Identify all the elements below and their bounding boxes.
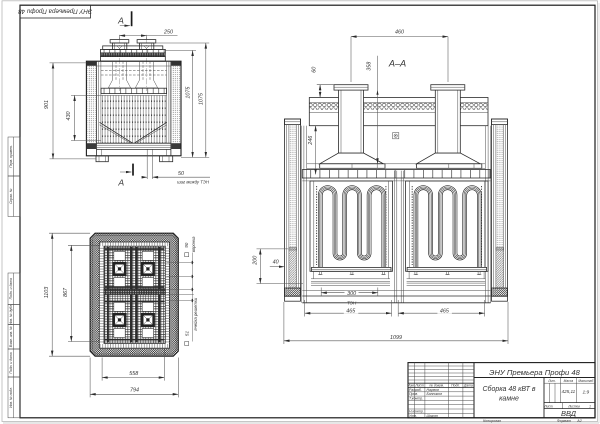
svg-text:1103: 1103 bbox=[44, 287, 50, 299]
svg-text:А2: А2 bbox=[576, 419, 581, 423]
svg-text:Лит.: Лит. bbox=[547, 379, 556, 383]
svg-text:465: 465 bbox=[440, 309, 450, 315]
svg-text:Листов: Листов bbox=[567, 404, 580, 408]
svg-text:1099: 1099 bbox=[390, 335, 402, 341]
svg-text:А–А: А–А bbox=[388, 59, 406, 69]
svg-text:Инв. № подл.: Инв. № подл. bbox=[9, 387, 13, 408]
svg-text:ячейка решетки: ячейка решетки bbox=[193, 297, 198, 331]
svg-text:Изм.: Изм. bbox=[408, 383, 415, 387]
svg-text:1075: 1075 bbox=[199, 92, 205, 105]
svg-text:Справ. №: Справ. № bbox=[9, 188, 13, 204]
svg-text:460: 460 bbox=[395, 30, 404, 36]
svg-text:Лист: Лист bbox=[543, 404, 553, 408]
svg-text:камне: камне bbox=[499, 396, 519, 403]
svg-text:Т.контр.: Т.контр. bbox=[409, 397, 423, 401]
svg-text:Сборка 48 кВТ в: Сборка 48 кВТ в bbox=[482, 385, 535, 393]
svg-text:Подп. и дата: Подп. и дата bbox=[9, 278, 13, 299]
svg-text:1075: 1075 bbox=[185, 86, 191, 99]
svg-text:ЭНУ Премьера Профи 48: ЭНУ Премьера Профи 48 bbox=[489, 368, 580, 377]
svg-text:воронка: воронка bbox=[191, 236, 196, 252]
svg-text:Формат: Формат bbox=[557, 419, 571, 423]
svg-text:Копировал: Копировал bbox=[483, 419, 501, 423]
svg-text:Масса: Масса bbox=[564, 379, 574, 383]
svg-text:425,11: 425,11 bbox=[562, 389, 576, 394]
svg-text:794: 794 bbox=[130, 388, 139, 394]
svg-text:Инв. № дубл.: Инв. № дубл. bbox=[9, 304, 13, 325]
svg-text:465: 465 bbox=[346, 309, 356, 315]
svg-text:867: 867 bbox=[63, 287, 69, 297]
svg-text:90: 90 bbox=[184, 242, 189, 248]
svg-text:50: 50 bbox=[178, 171, 184, 177]
svg-text:А: А bbox=[117, 16, 124, 26]
svg-text:ЭНУ Премьера Профи 48: ЭНУ Премьера Профи 48 bbox=[18, 7, 92, 14]
svg-text:51: 51 bbox=[184, 331, 189, 337]
svg-text:558: 558 bbox=[129, 371, 138, 377]
svg-text:430: 430 bbox=[66, 112, 72, 121]
svg-text:Перв. примен.: Перв. примен. bbox=[9, 145, 13, 168]
svg-text:Утв.: Утв. bbox=[409, 414, 417, 418]
svg-text:358: 358 bbox=[367, 62, 373, 71]
svg-text:Подп. и дата: Подп. и дата bbox=[9, 352, 13, 373]
svg-text:60: 60 bbox=[312, 67, 318, 73]
svg-text:300: 300 bbox=[347, 291, 356, 297]
svg-text:Лист: Лист bbox=[414, 383, 424, 387]
svg-text:Масштаб: Масштаб bbox=[578, 379, 593, 383]
svg-text:ТЭН: ТЭН bbox=[347, 300, 357, 305]
svg-text:Банников: Банников bbox=[427, 392, 443, 396]
svg-text:246: 246 bbox=[308, 136, 314, 146]
svg-text:1: 1 bbox=[589, 404, 591, 408]
svg-text:шаг между ТЭН: шаг между ТЭН bbox=[177, 180, 210, 185]
svg-text:А: А bbox=[117, 178, 124, 188]
svg-text:№ докум.: № докум. bbox=[429, 383, 444, 387]
svg-text:1:9: 1:9 bbox=[582, 389, 589, 395]
svg-text:Взам. инв. №: Взам. инв. № bbox=[9, 326, 13, 347]
svg-text:Шокот: Шокот bbox=[427, 414, 439, 418]
svg-text:Подп.: Подп. bbox=[451, 383, 460, 387]
svg-text:Дата: Дата bbox=[463, 383, 473, 387]
svg-text:250: 250 bbox=[163, 29, 173, 35]
svg-text:200: 200 bbox=[253, 256, 259, 266]
svg-text:40: 40 bbox=[273, 260, 279, 266]
svg-text:901: 901 bbox=[44, 100, 50, 109]
svg-text:ВВД: ВВД bbox=[561, 409, 577, 418]
